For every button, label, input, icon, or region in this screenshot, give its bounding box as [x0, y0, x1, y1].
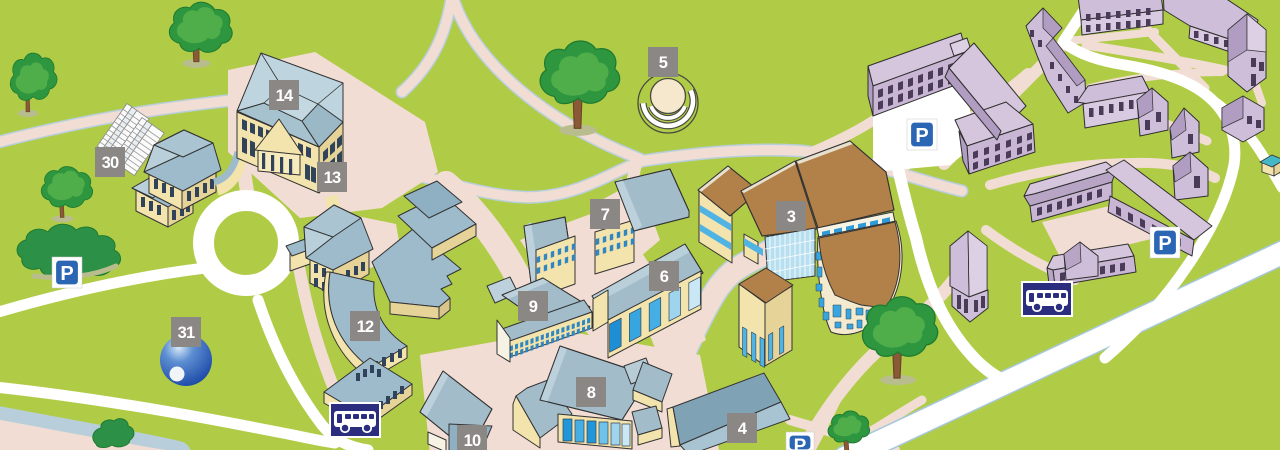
svg-text:14: 14	[276, 87, 294, 105]
svg-text:6: 6	[660, 268, 669, 286]
svg-text:8: 8	[587, 384, 596, 402]
svg-text:P: P	[60, 263, 73, 285]
svg-text:7: 7	[601, 206, 610, 224]
svg-text:12: 12	[357, 318, 374, 336]
svg-text:10: 10	[464, 432, 481, 450]
svg-text:P: P	[1158, 233, 1171, 255]
svg-text:P: P	[915, 125, 928, 147]
svg-text:3: 3	[787, 208, 796, 226]
svg-text:P: P	[794, 436, 807, 450]
svg-text:5: 5	[659, 54, 668, 72]
svg-text:13: 13	[324, 169, 341, 187]
svg-text:30: 30	[102, 154, 119, 172]
svg-text:9: 9	[529, 298, 538, 316]
svg-text:31: 31	[178, 324, 195, 342]
